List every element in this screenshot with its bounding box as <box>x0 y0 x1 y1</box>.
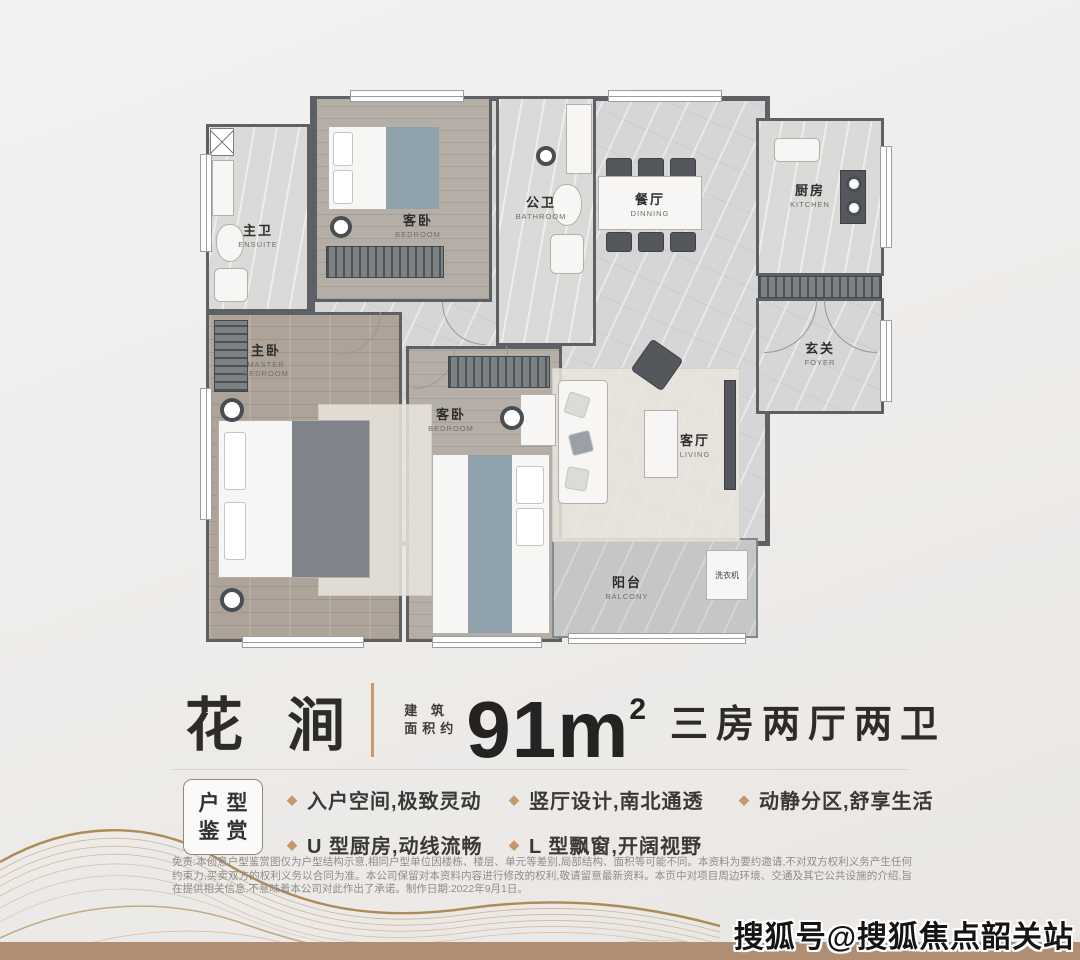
hallway-cabinet <box>758 276 882 298</box>
blanket <box>386 127 439 209</box>
watermark: 搜狐号@搜狐焦点韶关站 <box>734 912 1074 956</box>
divider-line <box>172 769 909 770</box>
area-label: 建 筑 面积约 <box>404 702 458 738</box>
diamond-bullet-icon: ◆ <box>287 792 298 808</box>
area-value: 91m2 <box>466 670 646 770</box>
dining-chair <box>606 158 632 178</box>
pillow <box>333 132 353 166</box>
window <box>200 154 212 252</box>
floorplan: 餐厅 DINNING <box>200 88 890 656</box>
feature-item: ◆L 型飘窗,开阔视野 <box>509 830 739 859</box>
window <box>432 636 542 648</box>
washing-machine-label: 洗衣机 <box>715 570 739 581</box>
wardrobe <box>326 246 444 278</box>
sink <box>550 234 584 274</box>
shaft-box <box>210 128 234 156</box>
pillow <box>224 502 246 560</box>
poster-page: 餐厅 DINNING <box>0 0 1080 960</box>
features-grid: ◆入户空间,极致灵动 ◆竖厅设计,南北通透 ◆动静分区,舒享生活 ◆U 型厨房,… <box>287 785 979 859</box>
coffee-table <box>644 410 678 478</box>
feature-item: ◆动静分区,舒享生活 <box>739 785 979 814</box>
shower-head <box>536 146 556 166</box>
sofa-cushion <box>564 466 589 491</box>
wardrobe <box>214 320 248 392</box>
wardrobe <box>448 356 550 388</box>
rooms-summary: 三房两厅两卫 <box>670 693 946 748</box>
diamond-bullet-icon: ◆ <box>287 837 298 853</box>
features-section: 户型 鉴赏 ◆入户空间,极致灵动 ◆竖厅设计,南北通透 ◆动静分区,舒享生活 ◆… <box>183 779 979 859</box>
stool <box>330 216 352 238</box>
unit-name: 花 涧 <box>185 678 357 762</box>
window <box>880 146 892 248</box>
window <box>568 633 746 644</box>
blanket <box>468 455 512 633</box>
feature-item: ◆竖厅设计,南北通透 <box>509 785 739 814</box>
window <box>242 636 364 648</box>
pillow <box>516 508 544 546</box>
diamond-bullet-icon: ◆ <box>739 792 750 808</box>
ensuite-cabinet <box>212 160 234 216</box>
dining-chair <box>638 232 664 252</box>
blanket <box>292 421 369 577</box>
features-tag: 户型 鉴赏 <box>183 779 263 855</box>
pillow <box>333 170 353 204</box>
window <box>350 90 464 102</box>
title-row: 花 涧 建 筑 面积约 91m2 三房两厅两卫 <box>185 672 946 768</box>
dining-chair <box>670 158 696 178</box>
dining-chair <box>606 232 632 252</box>
sink <box>214 268 248 302</box>
desk-chair <box>500 406 524 430</box>
title-divider <box>371 683 374 757</box>
dining-chair <box>670 232 696 252</box>
burner <box>846 200 862 216</box>
area-exponent: 2 <box>629 693 646 726</box>
desk <box>520 394 556 446</box>
tv-cabinet <box>724 380 736 490</box>
nightstand-lamp <box>220 398 244 422</box>
window <box>200 388 212 520</box>
pillow <box>224 432 246 490</box>
toilet <box>552 184 582 226</box>
pillow <box>516 466 544 504</box>
feature-item: ◆入户空间,极致灵动 <box>287 785 509 814</box>
burner <box>846 176 862 192</box>
room-label-dining: 餐厅 DINNING <box>631 189 670 218</box>
basin-cabinet <box>566 104 592 174</box>
window <box>880 320 892 402</box>
toilet <box>216 224 244 262</box>
disclaimer-text: 免责:本创意户型鉴赏图仅为户型结构示意,相同户型单位因楼栋、楼层、单元等差别,局… <box>172 856 912 897</box>
kitchen-sink <box>774 138 820 162</box>
dining-chair <box>638 158 664 178</box>
washing-machine: 洗衣机 <box>706 550 748 600</box>
dining-table: 餐厅 DINNING <box>598 176 702 230</box>
feature-item: ◆U 型厨房,动线流畅 <box>287 830 509 859</box>
diamond-bullet-icon: ◆ <box>509 792 520 808</box>
diamond-bullet-icon: ◆ <box>509 837 520 853</box>
window <box>608 90 722 102</box>
nightstand-lamp <box>220 588 244 612</box>
